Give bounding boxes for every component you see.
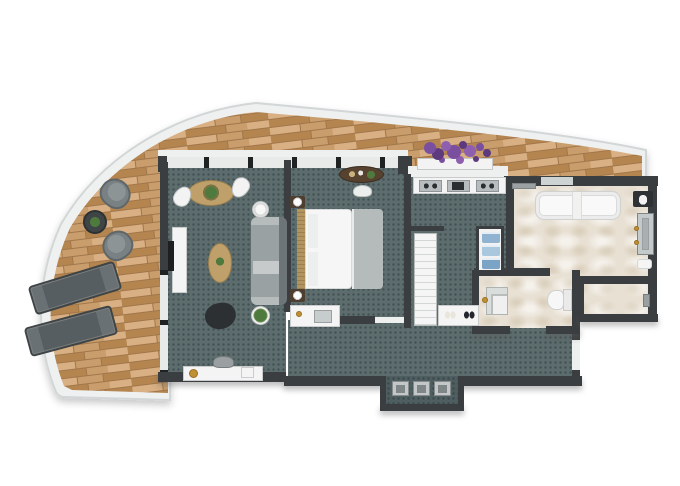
bed-mattress	[305, 209, 352, 289]
potted-plant	[251, 306, 270, 325]
powder-room-tap	[482, 297, 488, 303]
bed-blanket	[352, 209, 383, 289]
wall	[408, 226, 444, 231]
nightstand-with-lamp	[290, 289, 305, 302]
floor-plan	[0, 0, 680, 486]
wall	[506, 184, 514, 274]
desk-chair	[213, 356, 234, 368]
towel	[482, 232, 500, 243]
television	[168, 241, 174, 271]
wall	[380, 404, 464, 411]
wall	[546, 326, 580, 334]
nightstand-with-lamp	[290, 196, 305, 208]
lavender-flowers	[424, 142, 436, 154]
toilet-tank	[563, 289, 572, 311]
vanity-tap	[296, 311, 302, 317]
towel	[482, 245, 500, 256]
dark-washbasin-vanity	[633, 191, 653, 207]
gold-tray	[189, 369, 198, 378]
storage-box	[413, 381, 430, 396]
towel	[482, 258, 500, 269]
linen-closet	[476, 226, 504, 273]
shower-knob	[634, 240, 639, 245]
bath-mat	[637, 259, 652, 269]
shower-column	[637, 213, 654, 255]
hallway-floor	[288, 320, 578, 378]
tub-shelf	[572, 192, 582, 219]
round-side-table	[252, 201, 269, 218]
entry-door-opening	[572, 340, 580, 370]
wall	[160, 162, 168, 270]
hob-module	[476, 180, 499, 192]
bedroom-door-sill	[375, 317, 404, 323]
storage-box	[392, 381, 409, 396]
storage-box	[434, 381, 451, 396]
wall	[578, 276, 656, 284]
wall	[458, 376, 582, 386]
towel-rack	[512, 183, 536, 189]
wall	[472, 326, 510, 334]
dark-shoes	[463, 308, 475, 322]
wall	[578, 314, 658, 322]
tv-console	[172, 227, 187, 293]
bed-headboard	[297, 209, 305, 289]
bedroom-desk	[339, 166, 384, 183]
bedroom-desk-chair	[353, 185, 372, 197]
bathtub	[535, 191, 621, 220]
balcony-side-table-with-plant	[83, 210, 107, 234]
cooktop-module	[419, 180, 442, 192]
shower-fixture	[643, 294, 650, 307]
desk-box	[241, 367, 254, 378]
flower-planter-box	[417, 158, 493, 170]
dining-table	[188, 180, 234, 206]
bathroom-window	[541, 177, 573, 185]
wall	[284, 376, 384, 386]
kitchen-sink-basin	[452, 182, 464, 190]
vanity-sink	[314, 310, 332, 323]
light-shoes	[444, 308, 456, 322]
toilet-bowl	[547, 290, 564, 310]
shower-knob	[634, 226, 639, 231]
closet-shelving-unit	[414, 233, 437, 326]
balcony-sliding-door	[160, 270, 168, 374]
wall	[404, 174, 411, 328]
sofa	[251, 217, 287, 305]
coffee-table	[208, 243, 232, 283]
powder-room-washbasin	[486, 287, 508, 315]
